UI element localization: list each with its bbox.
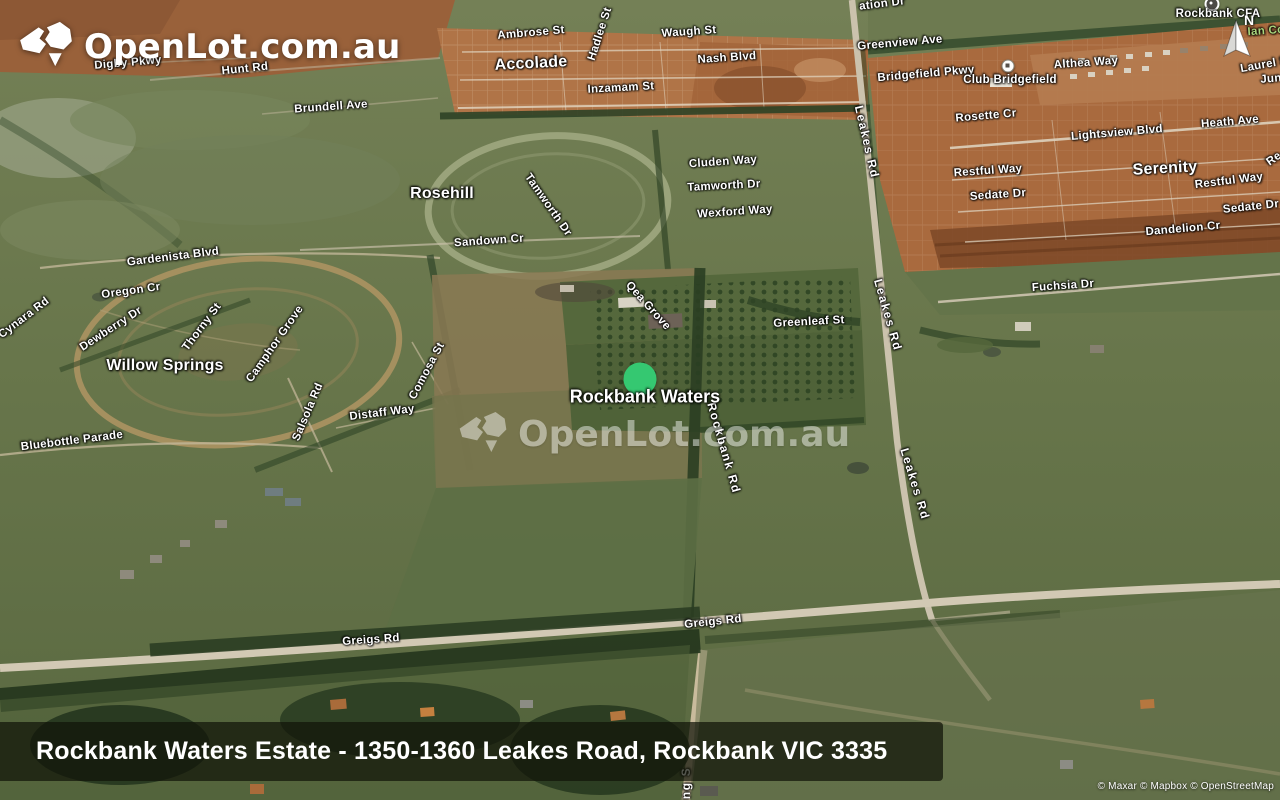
address-banner-text: Rockbank Waters Estate - 1350-1360 Leake… <box>0 737 887 766</box>
map-label-club-bridgefield: Club Bridgefield <box>963 74 1057 86</box>
map-label-nash-blvd: Nash Blvd <box>697 50 757 66</box>
map-label-cynara-rd: Cynara Rd <box>0 295 52 341</box>
map-label-sedate-dr: Sedate Dr <box>969 187 1026 203</box>
map-label-rosette-cr: Rosette Cr <box>955 107 1017 124</box>
map-label-waugh-st: Waugh St <box>661 24 717 40</box>
map-label-thorny-st: Thorny St <box>180 301 224 353</box>
map-label-willow-springs: Willow Springs <box>106 357 223 375</box>
map-label-dewberry-dr: Dewberry Dr <box>78 304 145 353</box>
map-label-greenview-ave: Greenview Ave <box>857 33 943 52</box>
map-label-cluden-way: Cluden Way <box>688 154 757 171</box>
map-label-brundell-ave: Brundell Ave <box>294 98 368 115</box>
map-label-ambrose-st: Ambrose St <box>497 24 565 42</box>
map-label-greigs-rd: Greigs Rd <box>342 632 400 648</box>
map-canvas[interactable]: Digby PkwyHunt RdBrundell AveAmbrose StH… <box>0 0 1280 800</box>
openlot-logo-icon <box>18 20 74 73</box>
map-label-hadlee-st: Hadlee St <box>586 6 614 62</box>
map-label-restful-way: Restful Way <box>953 163 1022 180</box>
map-label-gardenista-blvd: Gardenista Blvd <box>126 245 219 268</box>
map-label-camphor-grove: Camphor Grove <box>244 303 306 384</box>
map-label-sedate-dr: Sedate Dr <box>1222 198 1279 216</box>
map-label-tamworth-dr: Tamworth Dr <box>522 172 574 239</box>
map-label-rockbank-rd: Rockbank Rd <box>704 401 743 496</box>
map-label-rosehill: Rosehill <box>410 185 474 203</box>
map-label-bluebottle-parade: Bluebottle Parade <box>20 429 124 453</box>
map-label-bridgefield-pkwy: Bridgefield Pkwy <box>877 64 975 84</box>
map-label-re: Re <box>1264 150 1280 169</box>
map-label-fuchsia-dr: Fuchsia Dr <box>1031 278 1094 294</box>
map-label-tamworth-dr: Tamworth Dr <box>687 178 761 194</box>
estate-marker-label: Rockbank Waters <box>570 387 720 408</box>
club-bridgefield-poi-icon <box>1002 60 1015 73</box>
map-label-greenleaf-st: Greenleaf St <box>773 314 845 330</box>
map-label-oregon-cr: Oregon Cr <box>101 281 162 301</box>
address-banner: Rockbank Waters Estate - 1350-1360 Leake… <box>0 722 943 781</box>
map-label-wexford-way: Wexford Way <box>697 203 773 220</box>
map-label-comosa-st: Comosa St <box>407 340 447 401</box>
map-attribution[interactable]: © Maxar © Mapbox © OpenStreetMap <box>1098 781 1274 792</box>
map-label-leakes-rd: Leakes Rd <box>852 104 882 180</box>
openlot-logo-text: OpenLot.com.au <box>84 27 401 67</box>
map-label-heath-ave: Heath Ave <box>1201 113 1260 130</box>
openlot-logo[interactable]: OpenLot.com.au <box>18 20 401 73</box>
map-label-qea-grove: Qea Grove <box>623 279 673 332</box>
map-label-sandown-cr: Sandown Cr <box>454 233 525 250</box>
map-label-inzamam-st: Inzamam St <box>587 80 654 95</box>
map-label-greigs-rd: Greigs Rd <box>684 613 743 631</box>
map-label-dandelion-cr: Dandelion Cr <box>1145 220 1221 239</box>
map-label-leakes-rd: Leakes Rd <box>871 277 905 352</box>
map-label-distaff-way: Distaff Way <box>349 403 415 423</box>
map-label-althea-way: Althea Way <box>1053 55 1118 71</box>
map-label-accolade: Accolade <box>494 53 568 75</box>
map-label-ation-dr: ation Dr <box>859 0 906 13</box>
compass-north-arrow[interactable]: N <box>1220 12 1264 58</box>
map-label-serenity: Serenity <box>1132 158 1198 179</box>
map-label-jun: Jun <box>1260 72 1280 86</box>
map-label-salsola-rd: Salsola Rd <box>290 381 325 443</box>
map-label-restful-way: Restful Way <box>1194 171 1264 191</box>
map-label-leakes-rd: Leakes Rd <box>897 446 932 521</box>
compass-north-label: N <box>1244 12 1254 28</box>
map-label-lightsview-blvd: Lightsview Blvd <box>1071 123 1164 143</box>
